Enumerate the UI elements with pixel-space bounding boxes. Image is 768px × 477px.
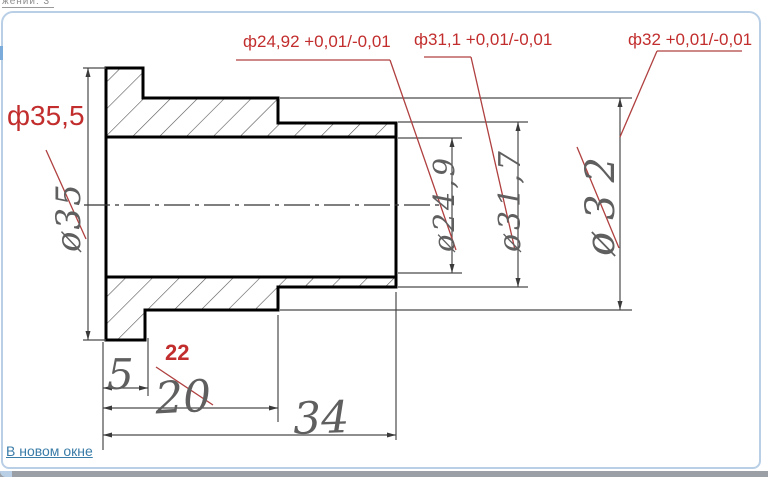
annotation-step-length: 22 xyxy=(165,340,189,365)
bottom-border-bar xyxy=(0,471,768,477)
annotation-bore-dia: ф24,92 +0,01/-0,01 xyxy=(243,32,391,51)
annotation-flange-dia: ф35,5 xyxy=(7,100,85,131)
section-hatching xyxy=(106,68,396,340)
hand-dim-flange-dia: ø35 xyxy=(49,182,89,253)
engineering-drawing: ф24,92 +0,01/-0,01 ф31,1 +0,01/-0,01 ф32… xyxy=(0,0,768,477)
cropped-top-label: жений: 3 xyxy=(2,0,54,8)
hand-dim-step-dia: ø31,7 xyxy=(493,147,528,253)
hand-dim-outer-dia: ø32 xyxy=(578,145,624,257)
hand-dim-total-length: 34 xyxy=(292,392,350,445)
hand-dim-flange-length: 5 xyxy=(107,350,134,399)
annotation-outer-dia: ф32 +0,01/-0,01 xyxy=(628,30,752,49)
hand-dim-step-length: 20 xyxy=(153,371,213,425)
hand-dim-bore-dia: ø24,9 xyxy=(427,155,461,253)
annotation-step-dia: ф31,1 +0,01/-0,01 xyxy=(414,30,552,49)
left-edge-marker xyxy=(0,46,3,60)
open-in-new-window-link[interactable]: В новом окне xyxy=(6,443,93,459)
